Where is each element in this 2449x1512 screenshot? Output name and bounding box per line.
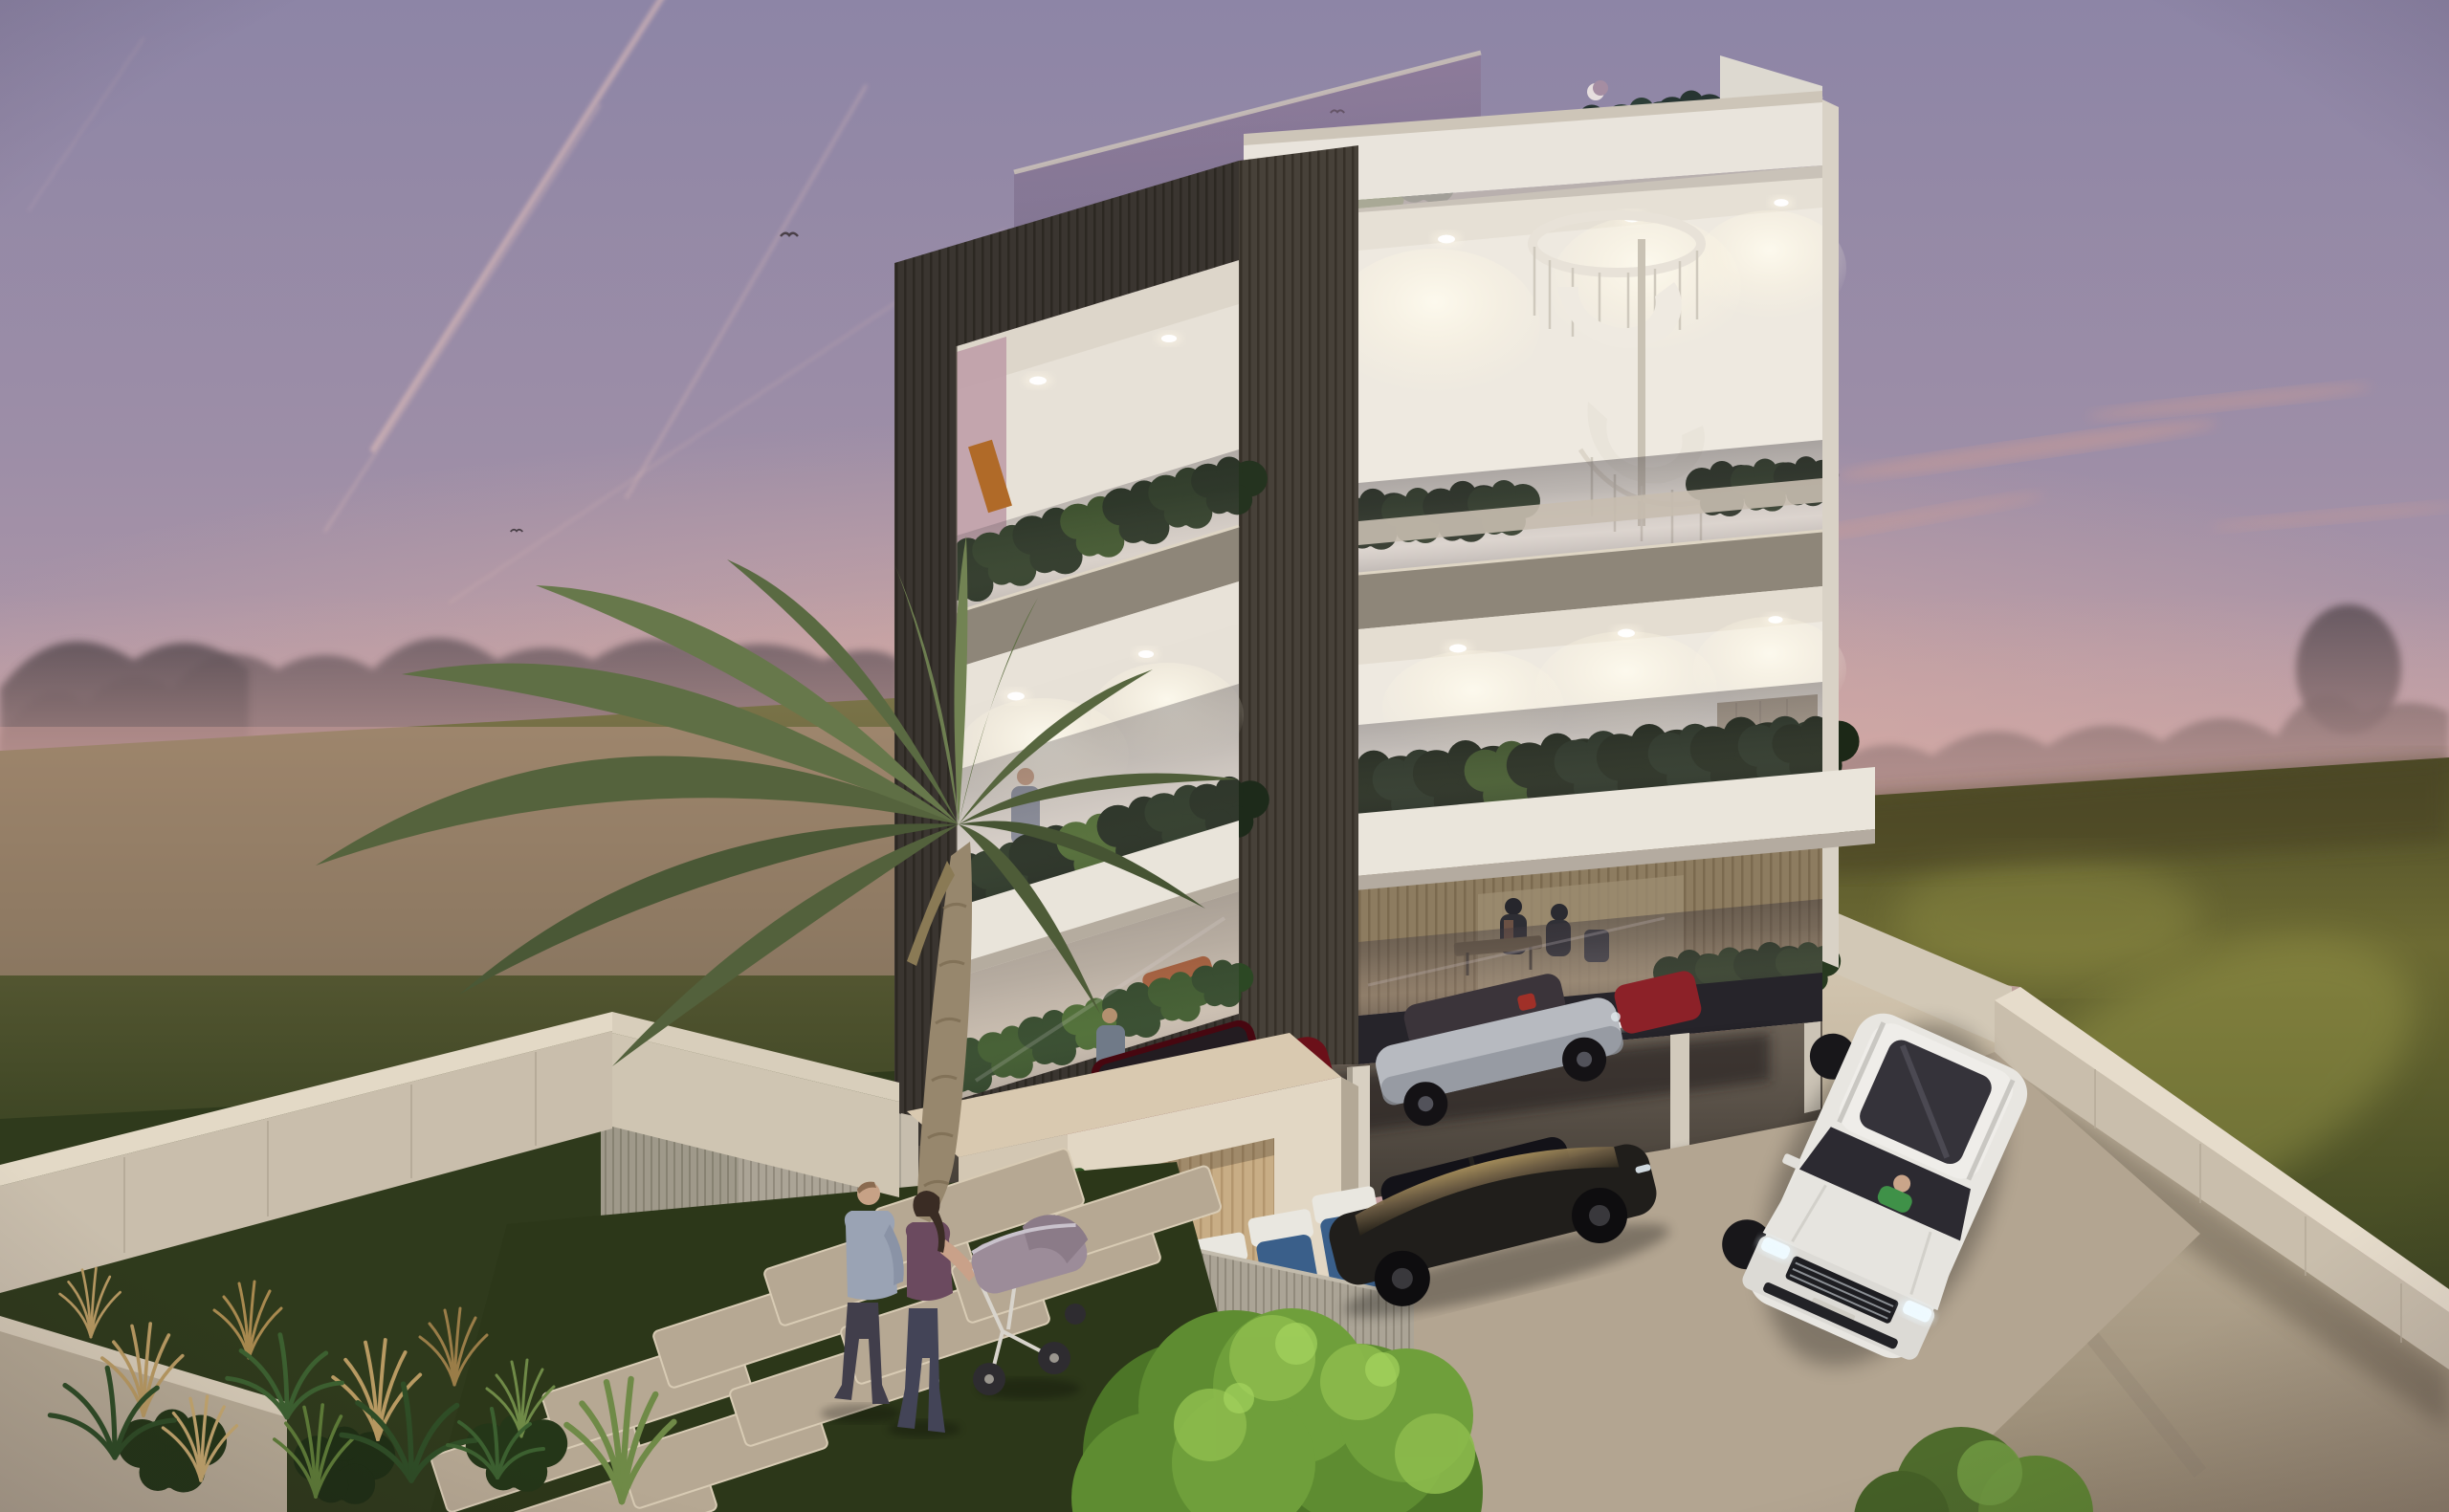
scene-svg: Dusk architectural rendering of a modern… (0, 0, 2449, 1512)
architectural-rendering: Dusk architectural rendering of a modern… (0, 0, 2449, 1512)
vignette (0, 0, 2449, 1512)
